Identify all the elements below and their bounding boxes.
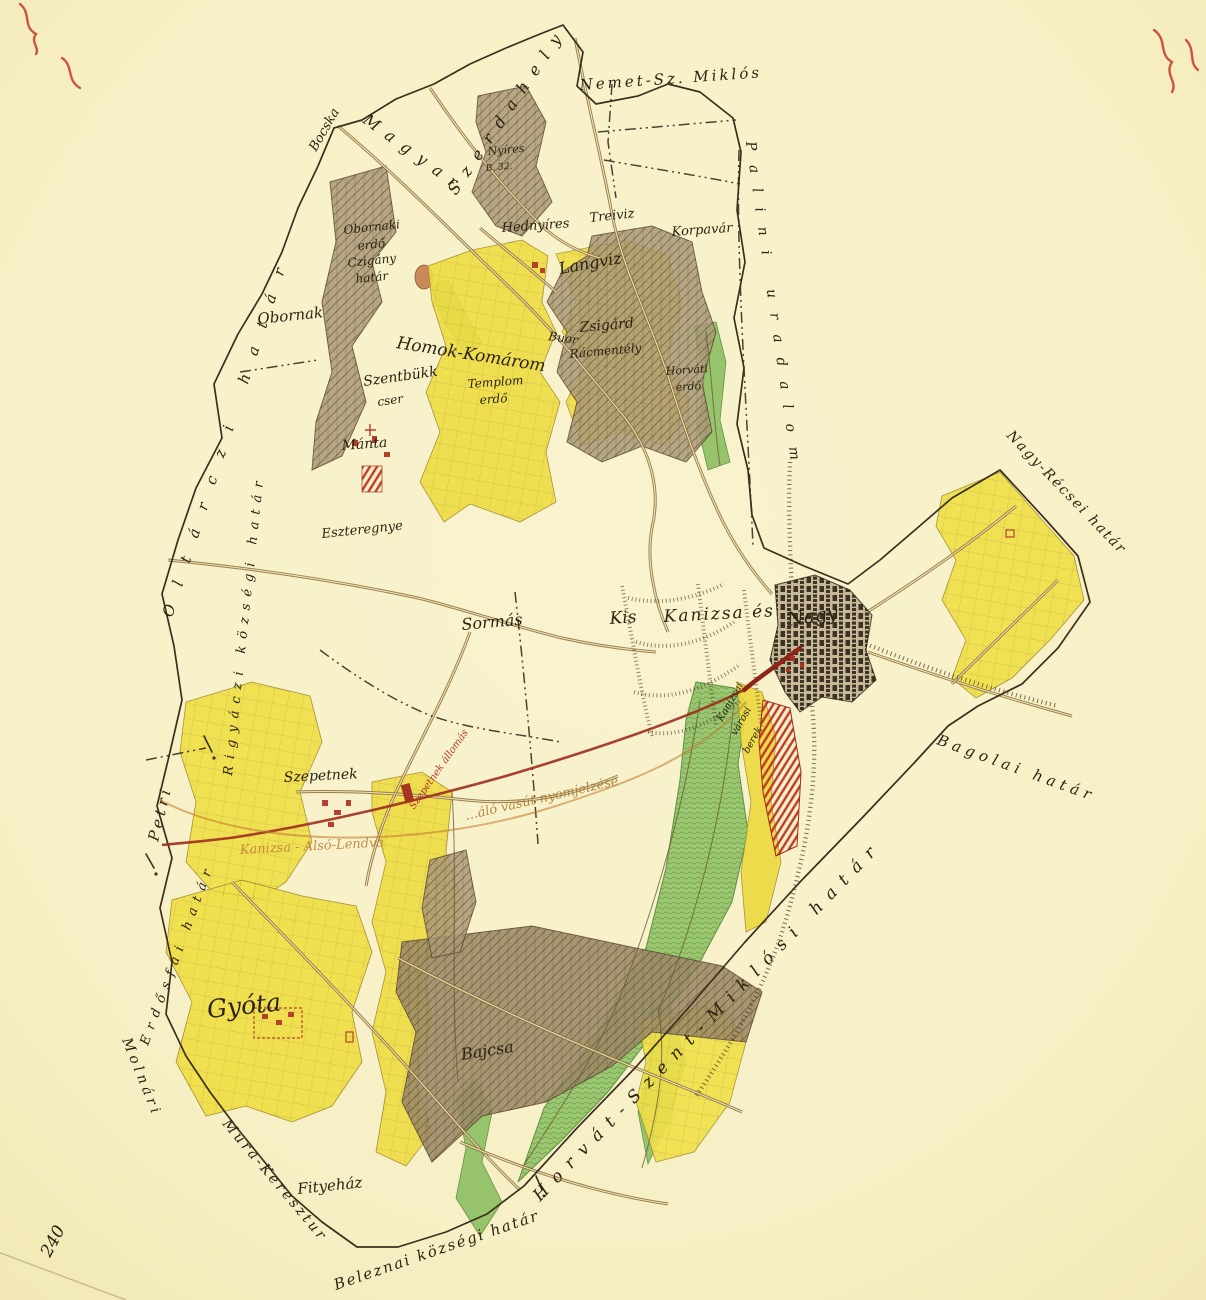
map-canvas: 240 Bocska Magyar Szerdahely Nemet-Sz. M…: [0, 0, 1206, 1300]
homokkomarom-village-mark: [362, 466, 382, 492]
szepetnek-village-mark: [322, 800, 328, 806]
label-templom-erdo: erdő: [479, 391, 508, 407]
label-horvati-erdo-2: erdő: [675, 379, 703, 394]
label-obornaki-erdo-2: erdő: [357, 236, 387, 253]
label-kis: Kis: [608, 607, 637, 629]
historic-map-sheet: 240 Bocska Magyar Szerdahely Nemet-Sz. M…: [0, 0, 1206, 1300]
label-manta: Mánta: [340, 435, 388, 454]
langviz-mark: [532, 262, 538, 268]
